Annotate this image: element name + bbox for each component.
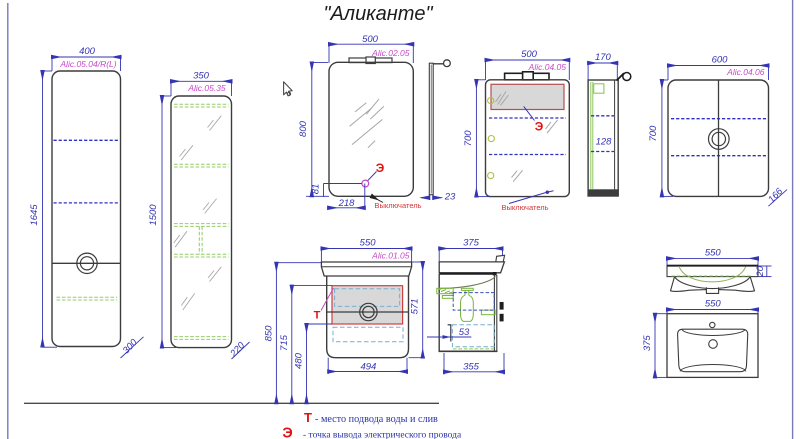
svg-text:800: 800 — [298, 120, 309, 137]
svg-text:- место подвода воды и слив: - место подвода воды и слив — [315, 414, 438, 425]
svg-text:Alic.05.04/R(L): Alic.05.04/R(L) — [59, 59, 116, 69]
svg-text:355: 355 — [463, 362, 480, 373]
svg-text:Т: Т — [304, 410, 312, 425]
svg-text:20: 20 — [755, 265, 766, 277]
svg-text:850: 850 — [263, 325, 274, 342]
svg-text:494: 494 — [360, 362, 376, 373]
svg-text:550: 550 — [360, 238, 377, 249]
svg-text:Э: Э — [535, 120, 544, 134]
svg-text:350: 350 — [193, 71, 210, 82]
svg-text:1500: 1500 — [148, 204, 159, 226]
svg-text:53: 53 — [459, 327, 470, 338]
svg-text:Alic.01.05: Alic.01.05 — [371, 251, 410, 261]
svg-text:375: 375 — [463, 238, 480, 249]
svg-text:Э: Э — [282, 426, 292, 439]
svg-text:81: 81 — [311, 184, 322, 195]
svg-text:23: 23 — [444, 192, 456, 203]
svg-text:Alic.04.06: Alic.04.06 — [726, 67, 765, 77]
svg-text:Выключатель: Выключатель — [374, 201, 421, 210]
svg-text:- точка вывода электрического: - точка вывода электрического провода — [303, 431, 462, 439]
svg-text:480: 480 — [294, 352, 305, 369]
svg-text:128: 128 — [596, 137, 613, 148]
svg-text:1645: 1645 — [29, 204, 40, 226]
svg-text:550: 550 — [705, 299, 722, 310]
svg-text:400: 400 — [79, 46, 96, 57]
svg-text:166: 166 — [766, 186, 785, 206]
svg-text:Alic.04.05: Alic.04.05 — [528, 62, 567, 72]
svg-text:700: 700 — [648, 125, 659, 142]
svg-text:715: 715 — [279, 334, 290, 351]
svg-text:550: 550 — [705, 248, 722, 259]
svg-text:"Аликанте": "Аликанте" — [323, 3, 433, 25]
svg-text:170: 170 — [595, 52, 612, 63]
svg-text:Alic.02.05: Alic.02.05 — [371, 48, 410, 58]
svg-text:571: 571 — [410, 298, 421, 314]
svg-text:700: 700 — [463, 130, 474, 147]
svg-text:Alic.05.35: Alic.05.35 — [187, 83, 226, 93]
svg-text:300: 300 — [121, 337, 140, 357]
svg-text:218: 218 — [338, 198, 356, 209]
svg-text:Т: Т — [314, 310, 321, 322]
svg-text:600: 600 — [712, 55, 729, 66]
svg-text:500: 500 — [362, 34, 379, 45]
svg-text:Выключатель: Выключатель — [501, 203, 548, 212]
svg-text:375: 375 — [642, 335, 653, 352]
svg-text:500: 500 — [521, 49, 538, 60]
svg-text:Э: Э — [376, 161, 385, 175]
